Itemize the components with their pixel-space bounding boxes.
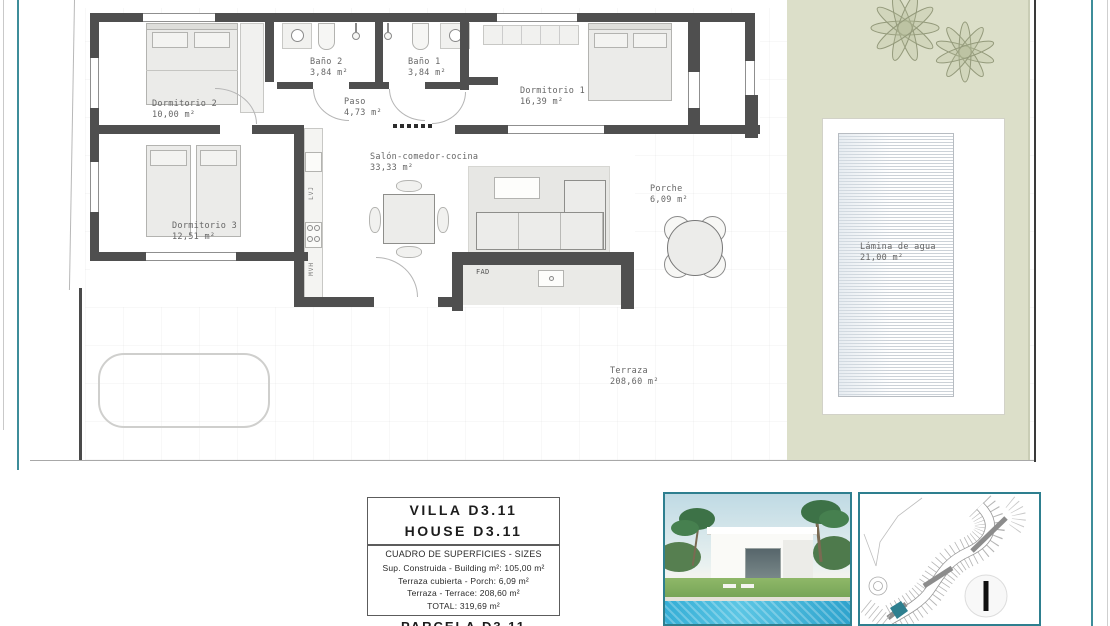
pillow (633, 33, 667, 48)
room-label-dormitorio-2: Dormitorio 2 10,00 m² (152, 99, 217, 120)
surface-table: CUADRO DE SUPERFICIES - SIZES Sup. Const… (367, 545, 560, 616)
bed-headboard (588, 23, 672, 30)
tap-stem (387, 23, 389, 32)
window (508, 125, 604, 134)
wall-segment (277, 82, 313, 89)
palm-fronds-icon (671, 520, 699, 536)
plot-boundary-right-dark (1034, 0, 1036, 462)
neighbor-line (69, 0, 75, 290)
room-area: 10,00 m² (152, 110, 195, 120)
window (497, 13, 577, 22)
pillow (200, 150, 237, 166)
villa-title: VILLA D3.11 (410, 500, 518, 521)
wall-segment (425, 82, 469, 89)
shower-drain-icon (291, 29, 304, 42)
page-edge-left (3, 0, 4, 430)
room-name: Dormitorio 2 (152, 99, 217, 109)
pillow (194, 32, 230, 48)
window (90, 58, 99, 108)
tv-unit-label: FAD (476, 268, 490, 277)
window (146, 252, 236, 261)
room-area: 3,84 m² (408, 68, 446, 78)
page-edge-right (1107, 0, 1108, 626)
house-title: HOUSE D3.11 (405, 521, 523, 542)
toilet-icon (412, 23, 429, 50)
title-block-name: VILLA D3.11 HOUSE D3.11 (367, 497, 560, 545)
wall-segment (745, 13, 755, 61)
room-area: 3,84 m² (310, 68, 348, 78)
porch-table (667, 220, 723, 276)
window (745, 61, 755, 95)
burner-icon (307, 236, 313, 242)
room-name: Paso (344, 97, 366, 107)
tap-icon (384, 32, 392, 40)
room-label-salon: Salón-comedor-cocina 33,33 m² (370, 152, 478, 173)
bed-headboard (146, 23, 238, 30)
room-name: Dormitorio 1 (520, 86, 585, 96)
window (143, 13, 215, 22)
surface-table-header: CUADRO DE SUPERFICIES - SIZES (385, 548, 541, 562)
surface-row-total: TOTAL: 319,69 m² (427, 600, 500, 613)
dining-table (383, 194, 435, 244)
room-label-terraza: Terraza 208,60 m² (610, 366, 659, 387)
chair (369, 207, 381, 233)
wall-pillar (452, 265, 463, 311)
tap-icon (352, 32, 360, 40)
kitchen-sink (305, 152, 322, 172)
plot-boundary-right-teal (1091, 0, 1093, 626)
tv-unit-knob (549, 276, 554, 281)
wall-segment (294, 125, 304, 307)
toilet-icon (318, 23, 335, 50)
room-name: Lámina de agua (860, 242, 936, 252)
room-label-bano-2: Baño 2 3,84 m² (310, 57, 348, 78)
chair (437, 207, 449, 233)
room-name: Baño 1 (408, 57, 441, 67)
wall-segment (294, 297, 374, 307)
wall-segment (455, 125, 760, 134)
palm-plants-icon (830, 0, 1040, 120)
room-area: 4,73 m² (344, 108, 382, 118)
room-label-bano-1: Baño 1 3,84 m² (408, 57, 446, 78)
room-label-dormitorio-1: Dormitorio 1 16,39 m² (520, 86, 585, 107)
floor-plan-sheet: LVJ MVH FAD (0, 0, 1110, 626)
villa-photo (663, 492, 852, 626)
burner-icon (314, 236, 320, 242)
room-name: Baño 2 (310, 57, 343, 67)
coffee-table (494, 177, 540, 199)
clipped-parcel-title: PARCELA D3.11 (367, 619, 560, 626)
room-name: Dormitorio 3 (172, 221, 237, 231)
site-map-drawing (860, 494, 1039, 624)
surface-row-building: Sup. Construida - Building m²: 105,00 m² (382, 562, 544, 575)
wall-segment (349, 82, 389, 89)
room-label-paso: Paso 4,73 m² (344, 97, 382, 118)
room-name: Salón-comedor-cocina (370, 152, 478, 162)
wall-segment (468, 77, 498, 85)
site-map (858, 492, 1041, 626)
plot-boundary-bottom (30, 460, 1035, 461)
chair (396, 246, 422, 258)
wall-segment (452, 252, 634, 265)
room-area: 33,33 m² (370, 163, 413, 173)
palm-fronds-icon (819, 510, 849, 528)
wall-segment (90, 13, 99, 261)
wall-segment (375, 15, 383, 82)
room-area: 21,00 m² (860, 253, 903, 263)
sofa (476, 212, 604, 250)
car-outline (98, 353, 270, 428)
room-label-lamina-de-agua: Lámina de agua 21,00 m² (860, 242, 936, 263)
room-area: 6,09 m² (650, 195, 688, 205)
room-area: 208,60 m² (610, 377, 659, 387)
blanket-line (146, 70, 238, 71)
window (90, 162, 99, 212)
pool-water (838, 133, 954, 397)
neighbor-line-dark (79, 288, 82, 460)
wall-segment (90, 125, 220, 134)
room-area: 16,39 m² (520, 97, 563, 107)
wall-segment (265, 15, 274, 82)
photo-lounger (723, 584, 736, 588)
wall-pillar (745, 95, 758, 138)
wall-segment (688, 108, 700, 134)
room-label-porche: Porche 6,09 m² (650, 184, 688, 205)
north-arrow-icon (984, 581, 989, 611)
wall-segment (688, 15, 700, 72)
chair (396, 180, 422, 192)
pillow (594, 33, 628, 48)
room-label-dormitorio-3: Dormitorio 3 12,51 m² (172, 221, 237, 242)
wardrobe (483, 25, 579, 45)
photo-lounger (741, 584, 754, 588)
wall-pillar (621, 252, 634, 309)
room-area: 12,51 m² (172, 232, 215, 242)
burner-icon (307, 225, 313, 231)
photo-pool (665, 601, 850, 624)
pillow (152, 32, 188, 48)
dishwasher-label: LVJ (308, 186, 315, 200)
pillow (150, 150, 187, 166)
room-name: Porche (650, 184, 683, 194)
window (688, 72, 700, 108)
burner-icon (314, 225, 320, 231)
surface-row-terrace: Terraza - Terrace: 208,60 m² (407, 587, 520, 600)
room-name: Terraza (610, 366, 648, 376)
micro-oven-label: MVH (308, 262, 315, 276)
surface-row-porch: Terraza cubierta - Porch: 6,09 m² (398, 575, 529, 588)
tap-stem (355, 23, 357, 32)
plot-boundary-left-teal (17, 0, 19, 470)
